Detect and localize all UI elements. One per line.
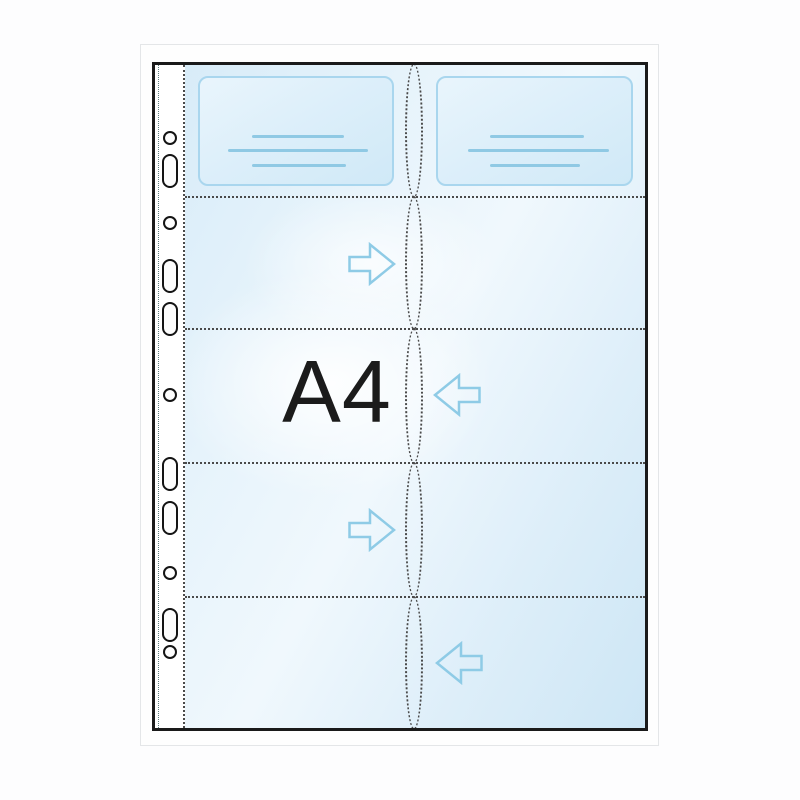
- punch-hole-circle: [163, 566, 177, 580]
- card-text-line: [468, 149, 609, 152]
- size-label: A4: [237, 348, 437, 436]
- a4-pocket-sheet: A4: [152, 62, 648, 731]
- product-illustration: A4: [0, 0, 800, 800]
- punch-hole-circle: [163, 131, 177, 145]
- thumb-slit-oval: [405, 65, 423, 198]
- punch-hole-oblong: [162, 259, 178, 293]
- punch-hole-oblong: [162, 154, 178, 188]
- punch-hole-oblong: [162, 302, 178, 336]
- punch-hole-circle: [163, 645, 177, 659]
- card-text-line: [490, 135, 584, 138]
- thumb-slit-oval: [405, 462, 423, 598]
- card-text-line: [490, 164, 580, 167]
- thumb-slit-oval: [405, 196, 423, 330]
- punch-hole-strip: [155, 65, 185, 728]
- insert-arrow-right-icon: [348, 508, 396, 552]
- weld-seam-line: [158, 65, 159, 728]
- card-text-line: [252, 164, 346, 167]
- thumb-slit-oval: [405, 596, 423, 728]
- insert-arrow-left-icon: [435, 641, 483, 685]
- punch-hole-circle: [163, 216, 177, 230]
- sheet-body: A4: [155, 65, 645, 728]
- punch-hole-circle: [163, 388, 177, 402]
- punch-hole-oblong: [162, 501, 178, 535]
- business-card: [198, 76, 394, 186]
- insert-arrow-right-icon: [348, 242, 396, 286]
- business-card: [436, 76, 633, 186]
- insert-arrow-left-icon: [433, 373, 481, 417]
- punch-hole-oblong: [162, 608, 178, 642]
- card-text-line: [252, 135, 344, 138]
- card-text-line: [228, 149, 368, 152]
- punch-hole-oblong: [162, 457, 178, 491]
